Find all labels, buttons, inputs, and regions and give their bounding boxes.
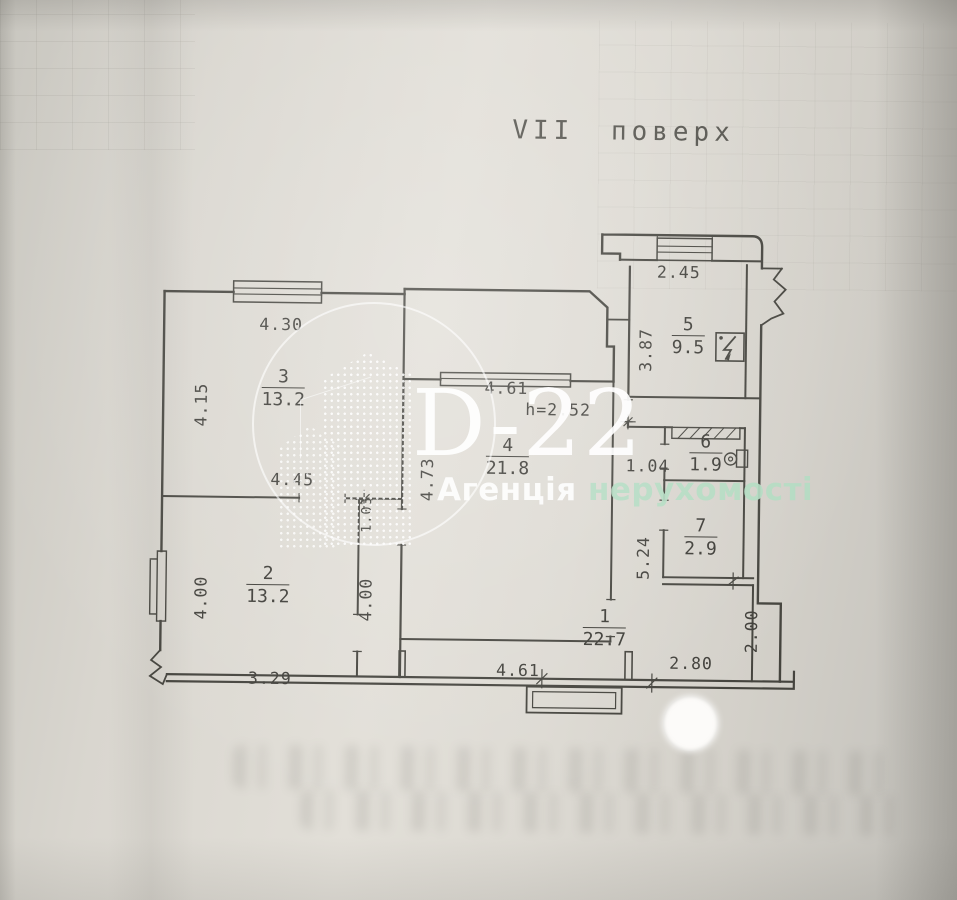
dim-kitchen-top: 2.45 [657,263,701,283]
room-label-5: 59.5 [672,316,705,359]
dim-hall-bottom: 4.61 [496,661,540,681]
dim-vestibule: 1.04 [625,456,669,476]
photo-edge-shadow-right [875,0,957,900]
photo-edge-shadow-left [0,0,16,900]
hole-punch [663,696,718,751]
dim-room4-left: 4.73 [418,457,438,501]
drawing-sheet: VII поверх [136,94,834,752]
dim-room4-top: 4.61 [484,378,528,398]
dim-entry-bottom: 2.80 [669,654,713,674]
dim-room3-bottom: 4.45 [270,470,314,490]
dim-room2-right: 4.00 [356,578,376,622]
dim-corridor-width: 1.03 [359,496,375,533]
room-label-2: 213.2 [246,565,290,608]
room-label-3: 313.2 [261,368,305,411]
floor-title: VII поверх [512,115,735,148]
dim-ceiling-height: h=2.52 [525,400,591,420]
dim-kitchen-left: 3.87 [636,328,656,372]
dim-room3-top: 4.30 [259,315,303,335]
dim-room2-left: 4.00 [191,576,211,620]
dim-room2-bottom: 3.29 [248,669,292,689]
bleed-through-text-line [233,745,893,796]
room-label-4: 421.8 [486,437,530,480]
dim-room3-left: 4.15 [191,383,211,427]
dim-entry-right: 2.00 [742,609,762,653]
bleed-through-text-line [300,790,912,836]
photographed-floorplan-page: VII поверх [0,0,957,900]
room-label-6: 61.9 [689,433,722,476]
room-label-7: 72.9 [684,517,717,560]
room-label-1: 122.7 [583,608,627,651]
dim-hall-right: 5.24 [634,536,654,580]
floor-plan: 4.30 4.15 4.45 1.03 4.73 4.61 h=2.52 2.4… [136,216,822,734]
